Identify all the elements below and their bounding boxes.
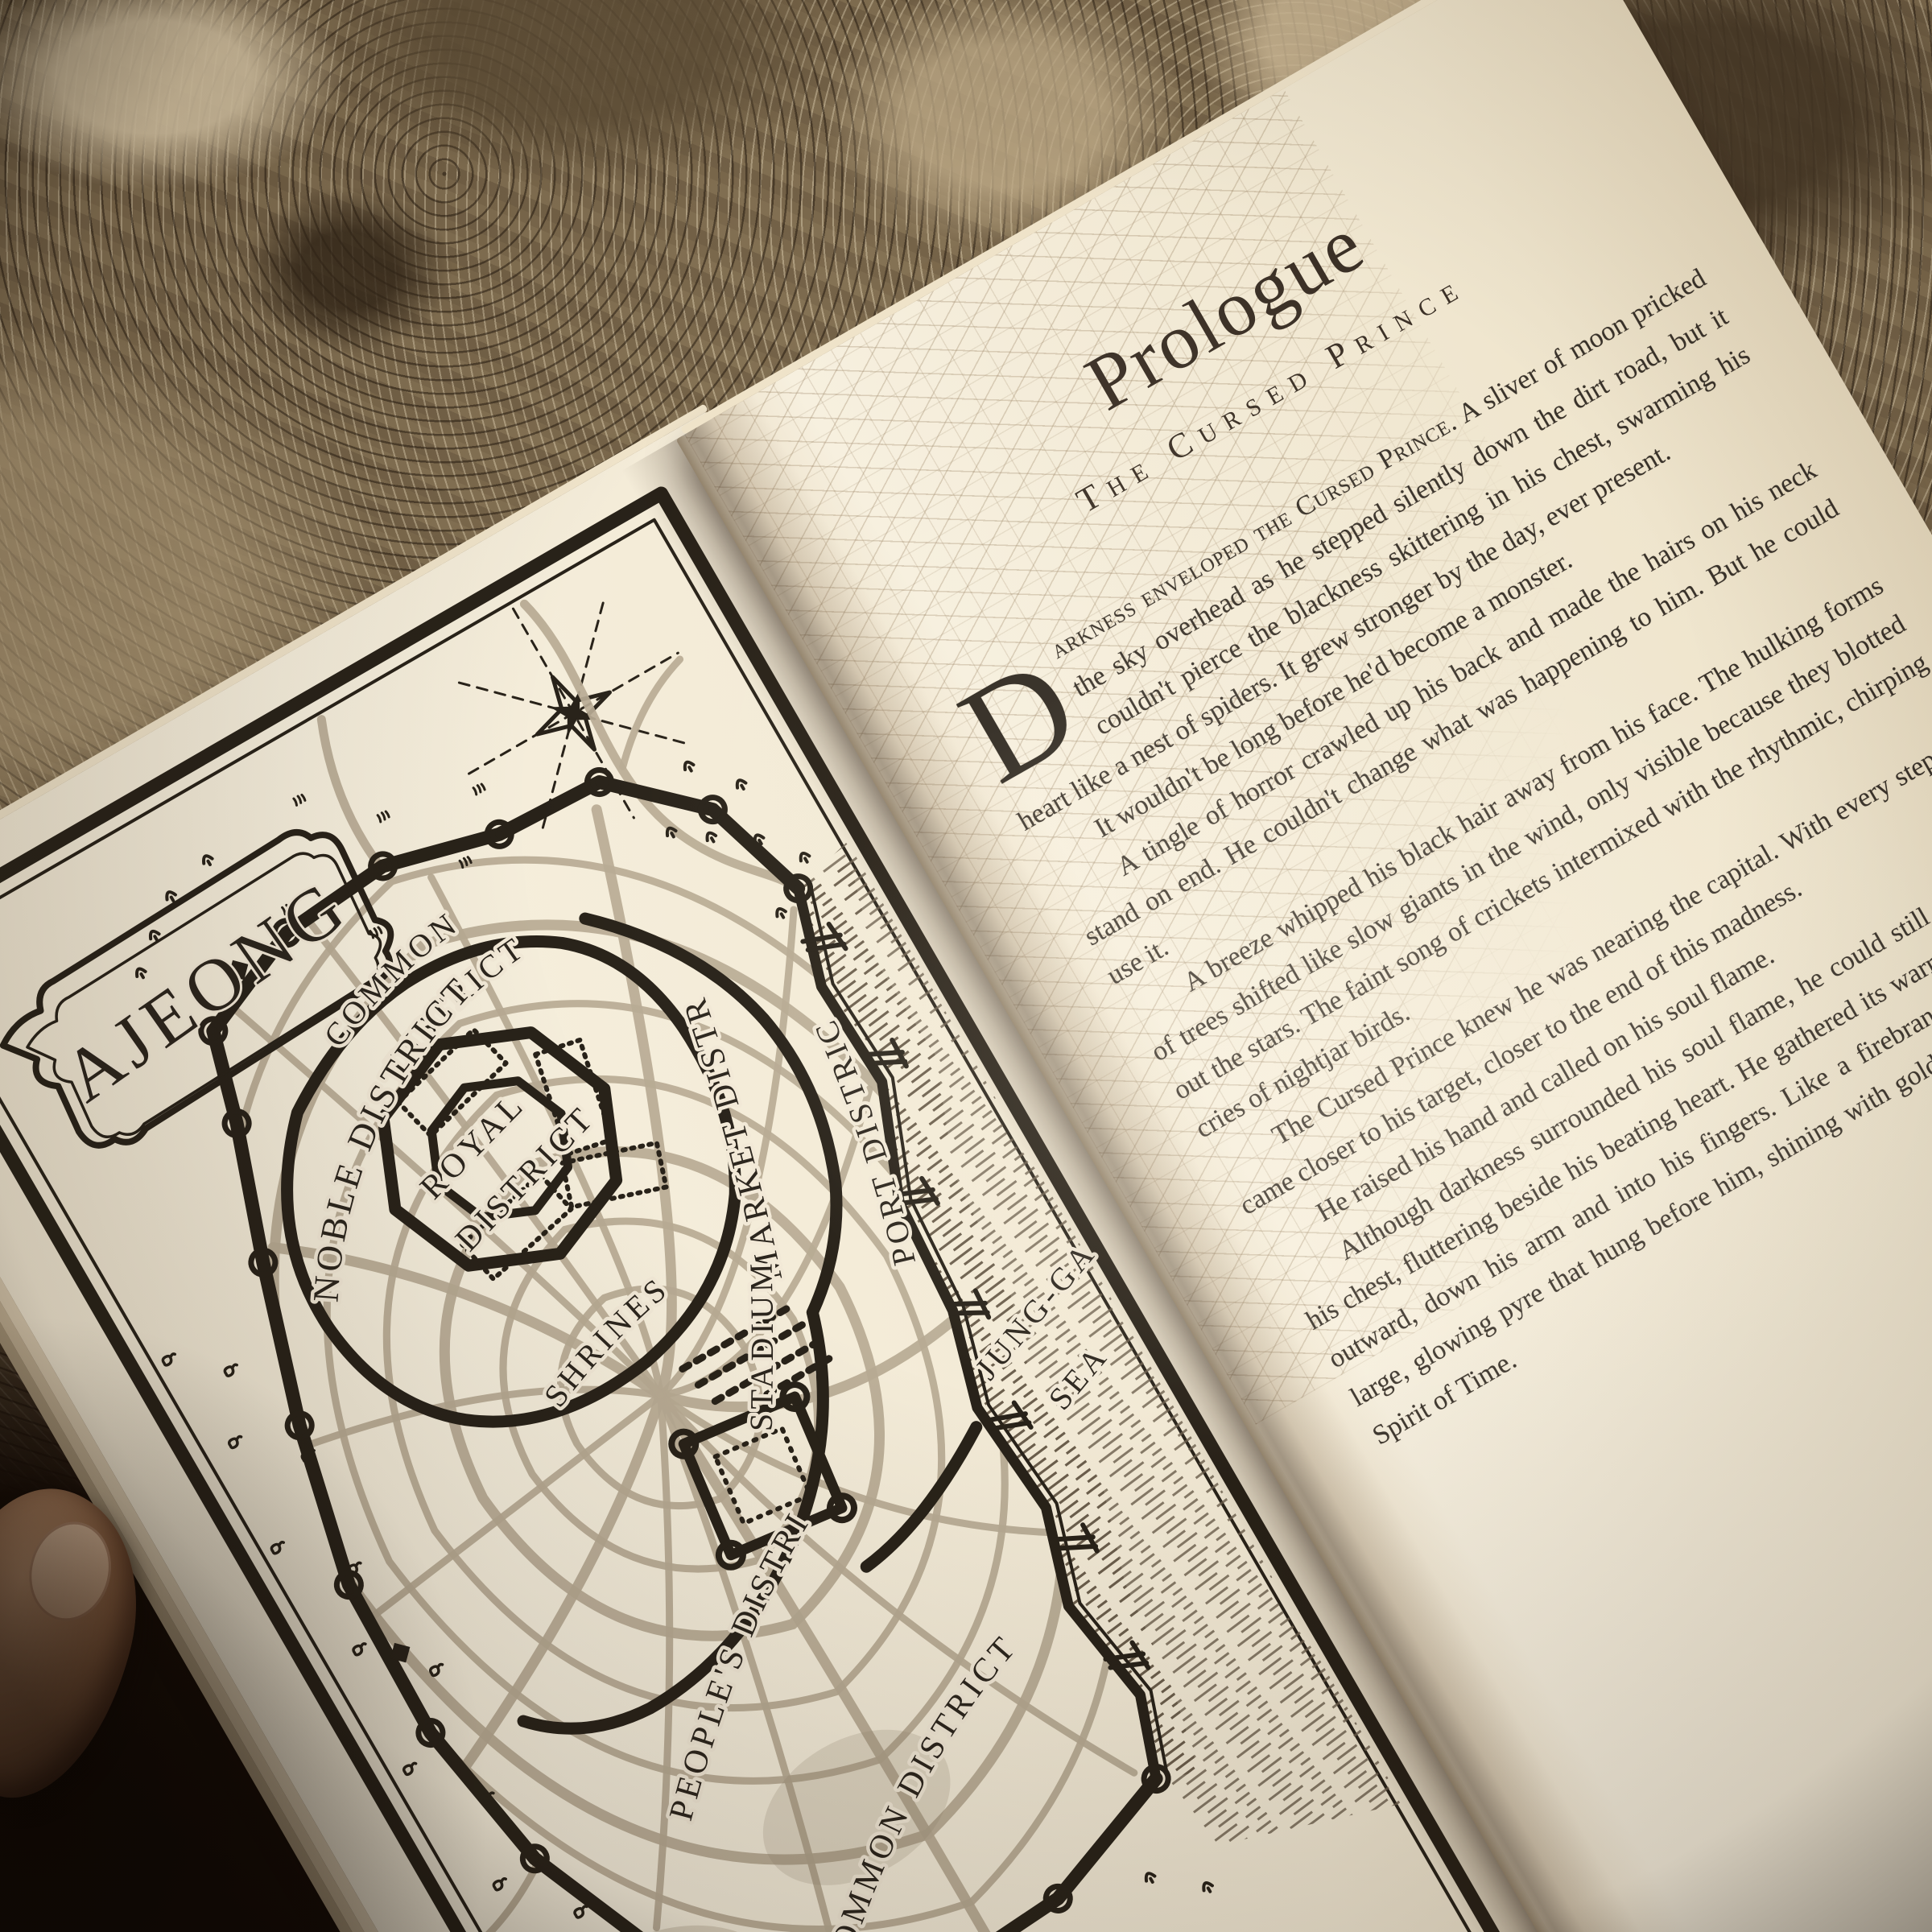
drop-cap: D [943,633,1101,794]
river [300,720,401,869]
thumbnail-nail [19,1513,122,1630]
photo-of-open-book: Ajeong Common District Noble District Ro… [0,0,1932,1932]
compass-rose [409,548,739,878]
